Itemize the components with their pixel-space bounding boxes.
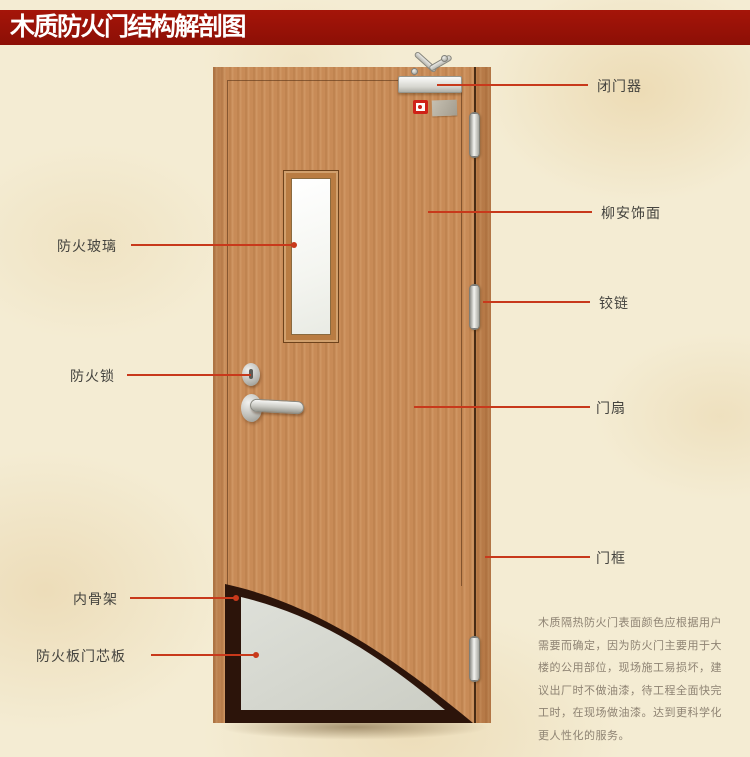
leader-dot	[253, 652, 259, 658]
fire-glass-window	[283, 170, 339, 343]
description-line: 议出厂时不做油漆，待工程全面快完	[538, 680, 728, 703]
description-line: 需要而确定，因为防火门主要用于大	[538, 635, 728, 658]
core-panel-shape	[241, 597, 445, 710]
label-fire-glass: 防火玻璃	[57, 236, 117, 256]
label-inner-skeleton: 内骨架	[73, 589, 118, 609]
label-core-panel: 防火板门芯板	[36, 646, 126, 666]
label-lauan-veneer: 柳安饰面	[601, 203, 661, 223]
window-glass	[291, 178, 331, 335]
description-line: 更人性化的服务。	[538, 725, 728, 748]
label-door-frame: 门框	[596, 548, 626, 568]
description-line: 木质隔热防火门表面颜色应根据用户	[538, 612, 728, 635]
leader-line-lauan-veneer	[428, 211, 592, 213]
hinge-middle	[469, 284, 480, 330]
door-illustration	[213, 67, 491, 723]
door-closer-joint	[411, 68, 418, 75]
leader-line-fire-lock	[127, 374, 251, 376]
door-inset-panel-line	[227, 80, 462, 586]
leader-line-door-closer	[437, 84, 588, 86]
leader-line-fire-glass	[131, 244, 295, 246]
label-hinge: 铰链	[599, 293, 629, 313]
door-handle-lever	[250, 399, 305, 415]
page-title: 木质防火门结构解剖图	[10, 10, 245, 45]
leader-line-door-leaf	[414, 406, 590, 408]
cutaway-section	[213, 560, 491, 723]
leader-line-inner-skeleton	[130, 597, 237, 599]
closer-name-plate	[432, 100, 458, 117]
fire-rating-label	[413, 100, 428, 114]
door-closer-joint	[441, 55, 448, 62]
leader-line-door-frame	[485, 556, 590, 558]
page-background: 木质防火门结构解剖图	[0, 0, 750, 757]
label-door-closer: 闭门器	[597, 76, 642, 96]
description-line: 楼的公用部位，现场施工易损坏，建	[538, 657, 728, 680]
description-text: 木质隔热防火门表面颜色应根据用户 需要而确定，因为防火门主要用于大 楼的公用部位…	[538, 612, 728, 747]
leader-dot	[291, 242, 297, 248]
leader-dot	[233, 595, 239, 601]
label-fire-lock: 防火锁	[70, 366, 115, 386]
description-line: 工时，在现场做油漆。达到更科学化	[538, 702, 728, 725]
leader-line-hinge	[483, 301, 590, 303]
page-title-bar: 木质防火门结构解剖图	[0, 10, 750, 45]
hinge-top	[469, 112, 480, 158]
label-door-leaf: 门扇	[596, 398, 626, 418]
leader-line-core-panel	[151, 654, 257, 656]
